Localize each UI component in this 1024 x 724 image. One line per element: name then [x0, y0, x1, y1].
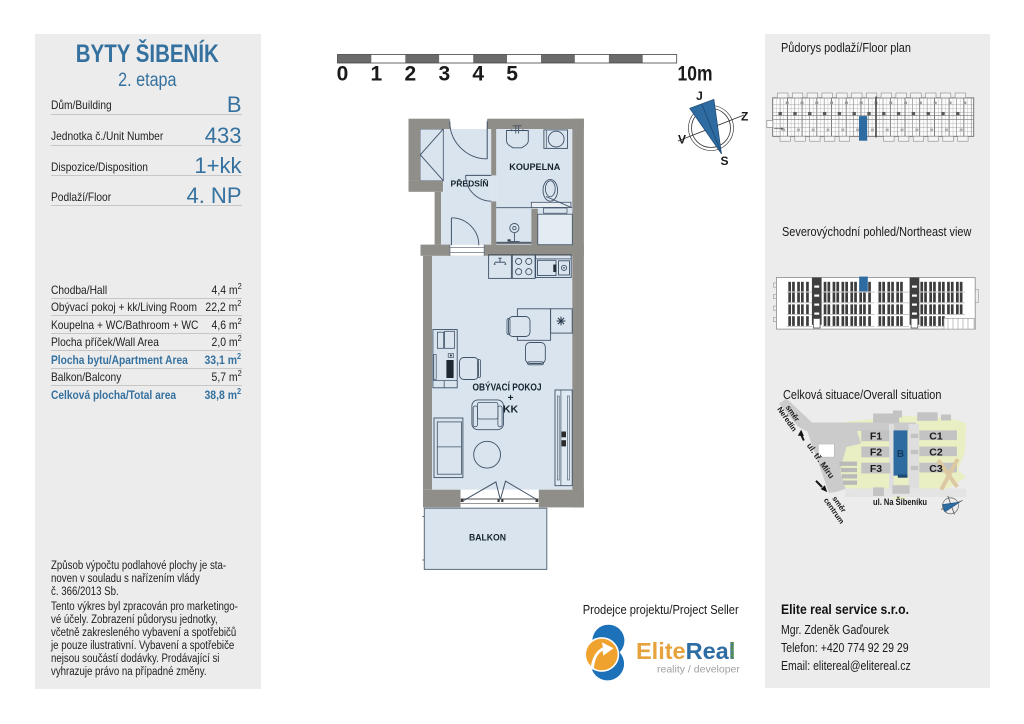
svg-text:OBÝVACÍ POKOJ: OBÝVACÍ POKOJ	[473, 381, 542, 394]
svg-text:KOUPELNA: KOUPELNA	[509, 162, 560, 173]
svg-text:V: V	[678, 133, 686, 147]
svg-text:Prodejce projektu/Project Sell: Prodejce projektu/Project Seller	[583, 602, 740, 617]
svg-text:0: 0	[337, 63, 349, 86]
svg-text:S: S	[720, 154, 728, 168]
svg-text:ul. Na Šibeníku: ul. Na Šibeníku	[873, 496, 927, 508]
svg-text:PŘEDSÍŇ: PŘEDSÍŇ	[451, 178, 489, 189]
svg-text:3: 3	[438, 63, 450, 86]
svg-text:F1: F1	[870, 431, 882, 443]
svg-text:F2: F2	[870, 447, 882, 459]
svg-text:C1: C1	[929, 431, 943, 443]
svg-text:service: service	[730, 642, 736, 659]
svg-text:Z: Z	[741, 110, 748, 124]
svg-text:B: B	[897, 449, 904, 460]
svg-text:5: 5	[506, 63, 518, 86]
svg-text:EliteReal: EliteReal	[636, 638, 735, 664]
svg-text:BALKON: BALKON	[469, 533, 506, 544]
svg-text:2: 2	[404, 63, 416, 86]
svg-text:C2: C2	[929, 447, 943, 459]
svg-text:KK: KK	[503, 404, 519, 416]
svg-text:C3: C3	[929, 463, 943, 475]
svg-text:4: 4	[472, 63, 484, 86]
svg-text:F3: F3	[870, 463, 882, 475]
svg-text:+: +	[508, 393, 514, 404]
svg-text:10m: 10m	[678, 63, 713, 86]
svg-text:1: 1	[371, 63, 383, 86]
svg-text:J: J	[696, 89, 703, 103]
svg-text:reality / developer: reality / developer	[657, 664, 740, 676]
